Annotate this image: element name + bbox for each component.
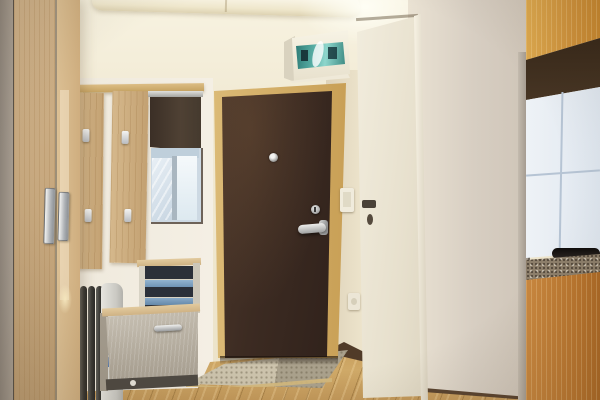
peephole-icon: [269, 153, 278, 162]
interior-door: [352, 4, 432, 400]
front-door: [208, 78, 350, 368]
kitchenette: [518, 0, 600, 400]
coat-hook-icon: [122, 131, 129, 144]
door-bottom-shadow: [220, 356, 338, 365]
shoe-cabinet-knob: [130, 380, 136, 386]
mirror-cabinet: [148, 86, 204, 224]
hallway-photo: [0, 0, 600, 400]
mirror: [151, 148, 203, 224]
wardrobe-handle: [57, 192, 69, 241]
heater-fin: [80, 286, 87, 400]
coat-hook-icon: [124, 209, 131, 222]
light-switch: [340, 188, 354, 212]
fuse-box: [284, 28, 352, 88]
coat-hook-icon: [82, 129, 89, 142]
coat-rack-board: [110, 91, 149, 264]
interior-door-handle: [362, 200, 376, 208]
coat-rack-board: [76, 93, 104, 269]
coat-hook-icon: [85, 209, 92, 222]
mirror-reflection-right: [177, 156, 197, 220]
shoe-cabinet: [98, 298, 202, 396]
roller-blind: [150, 97, 201, 152]
breaker-icon: [301, 50, 308, 61]
wardrobe-handle: [43, 188, 55, 244]
power-outlet: [348, 293, 360, 310]
wardrobe-edge: [0, 0, 14, 400]
heater-fin: [88, 286, 95, 400]
mirror-reflection-left: [152, 158, 172, 220]
wardrobe-mirror-highlight: [58, 284, 72, 314]
shelf-board: [145, 279, 193, 287]
breaker-icon: [328, 47, 337, 59]
kitchen-lower-cabinet: [526, 272, 600, 400]
wardrobe: [0, 0, 80, 400]
interior-door-keyhole: [367, 214, 373, 225]
mirror-top-rail: [148, 91, 203, 97]
lock-cylinder: [311, 205, 320, 214]
